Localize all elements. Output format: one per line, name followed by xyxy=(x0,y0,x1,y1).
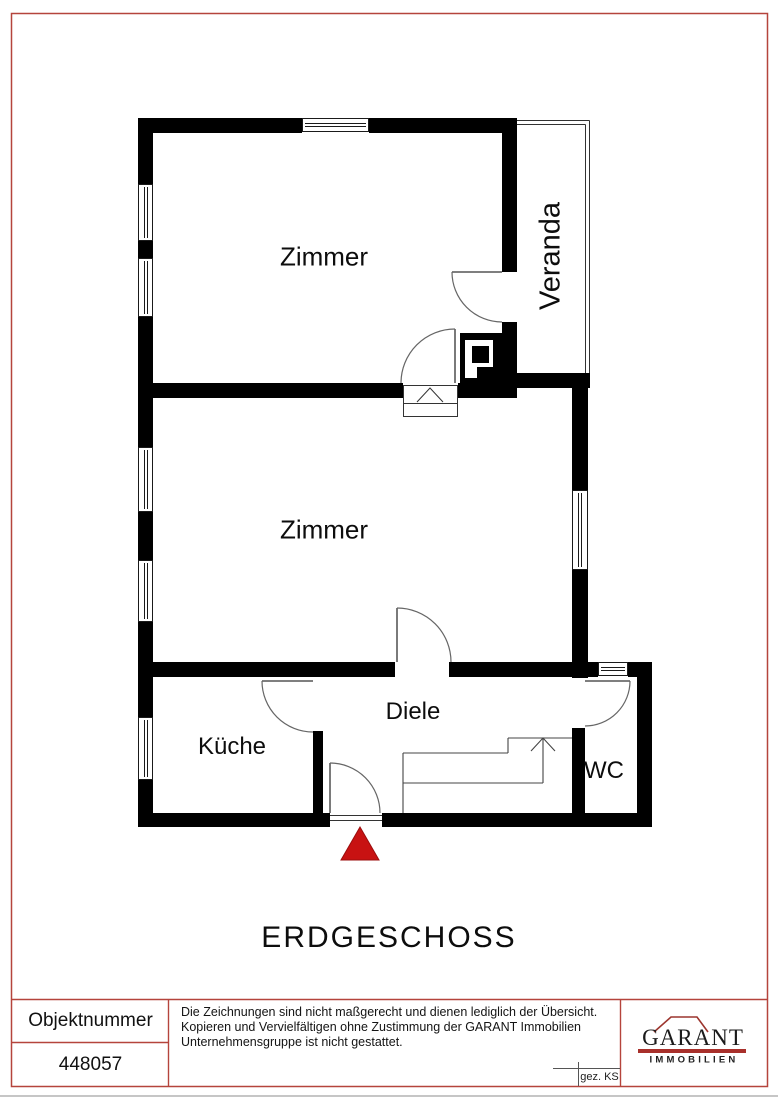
room-label-wc: WC xyxy=(584,757,624,785)
disclaimer-line-1: Die Zeichnungen sind nicht maßgerecht un… xyxy=(181,1005,613,1020)
floor-title: ERDGESCHOSS xyxy=(261,921,516,955)
room-label-veranda: Veranda xyxy=(535,202,568,310)
disclaimer-text: Die Zeichnungen sind nicht maßgerecht un… xyxy=(181,1005,613,1050)
disclaimer-line-2: Kopieren und Vervielfältigen ohne Zustim… xyxy=(181,1020,613,1035)
chimney-symbol xyxy=(460,333,517,387)
entrance-marker-icon xyxy=(341,827,379,860)
staircase xyxy=(403,738,572,813)
logo-subtitle: IMMOBILIEN xyxy=(650,1055,739,1066)
scanned-floorplan-page: Zimmer Veranda Zimmer Küche Diele WC ERD… xyxy=(0,0,778,1100)
room-label-diele: Diele xyxy=(386,698,441,726)
object-number-label: Objektnummer xyxy=(13,1000,168,1042)
room-label-kueche: Küche xyxy=(198,733,266,761)
disclaimer-line-3: Unternehmensgruppe ist nicht gestattet. xyxy=(181,1035,613,1050)
steps-symbol xyxy=(404,386,458,417)
drawn-by-tag: gez. KS xyxy=(580,1069,619,1085)
logo-name: GARANT xyxy=(642,1025,744,1051)
room-label-zimmer-middle: Zimmer xyxy=(280,515,368,546)
object-number-value: 448057 xyxy=(13,1043,168,1086)
room-label-zimmer-top: Zimmer xyxy=(280,242,368,273)
